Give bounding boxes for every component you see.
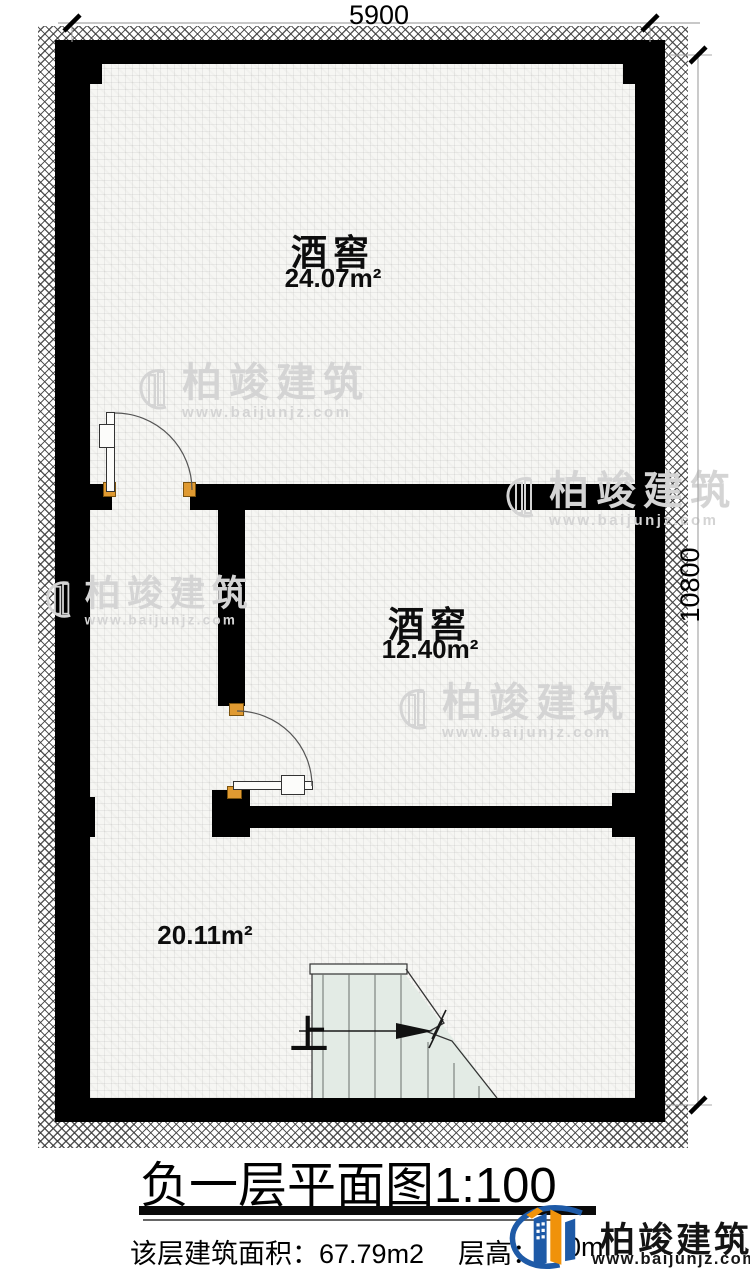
floor-area-value: 67.79m2 [319, 1239, 424, 1269]
floor-area-text: 该层建筑面积：67.79m2 [130, 1232, 424, 1271]
interior-wall-2-right-column [612, 793, 635, 837]
dimension-right-value: 10800 [675, 540, 705, 630]
column-top-right [623, 64, 635, 84]
room3-area: 20.11m² [125, 920, 285, 951]
stairs-up-label: 上 [290, 1004, 328, 1059]
dim-tick [690, 1097, 706, 1113]
door2-jamb-stop [229, 703, 244, 716]
brand-url: www.baijunjz.com [592, 1250, 750, 1269]
brand-logo-icon [506, 1202, 602, 1274]
dimension-top-value: 5900 [334, 0, 424, 31]
room2-area: 12.40m² [350, 634, 510, 665]
left-wall-pilaster [55, 797, 95, 837]
plan-title-text: 负一层平面图 [140, 1159, 434, 1213]
door1-handle [99, 424, 115, 448]
floor-area-label: 该层建筑面积： [130, 1239, 319, 1269]
floor-plan-page: 柏竣建筑 www.baijunjz.com 柏竣建筑 www.baijunjz.… [0, 0, 750, 1276]
interior-wall-2-main [245, 806, 635, 828]
dim-tick [690, 47, 706, 63]
room1-area: 24.07m² [253, 263, 413, 294]
interior-wall-vertical [218, 510, 245, 706]
column-top-left [90, 64, 102, 84]
title-underline-thin [143, 1219, 557, 1221]
interior-wall-1-main [190, 484, 635, 510]
door1-jamb-stop [183, 482, 196, 497]
door2-handle [281, 775, 305, 795]
